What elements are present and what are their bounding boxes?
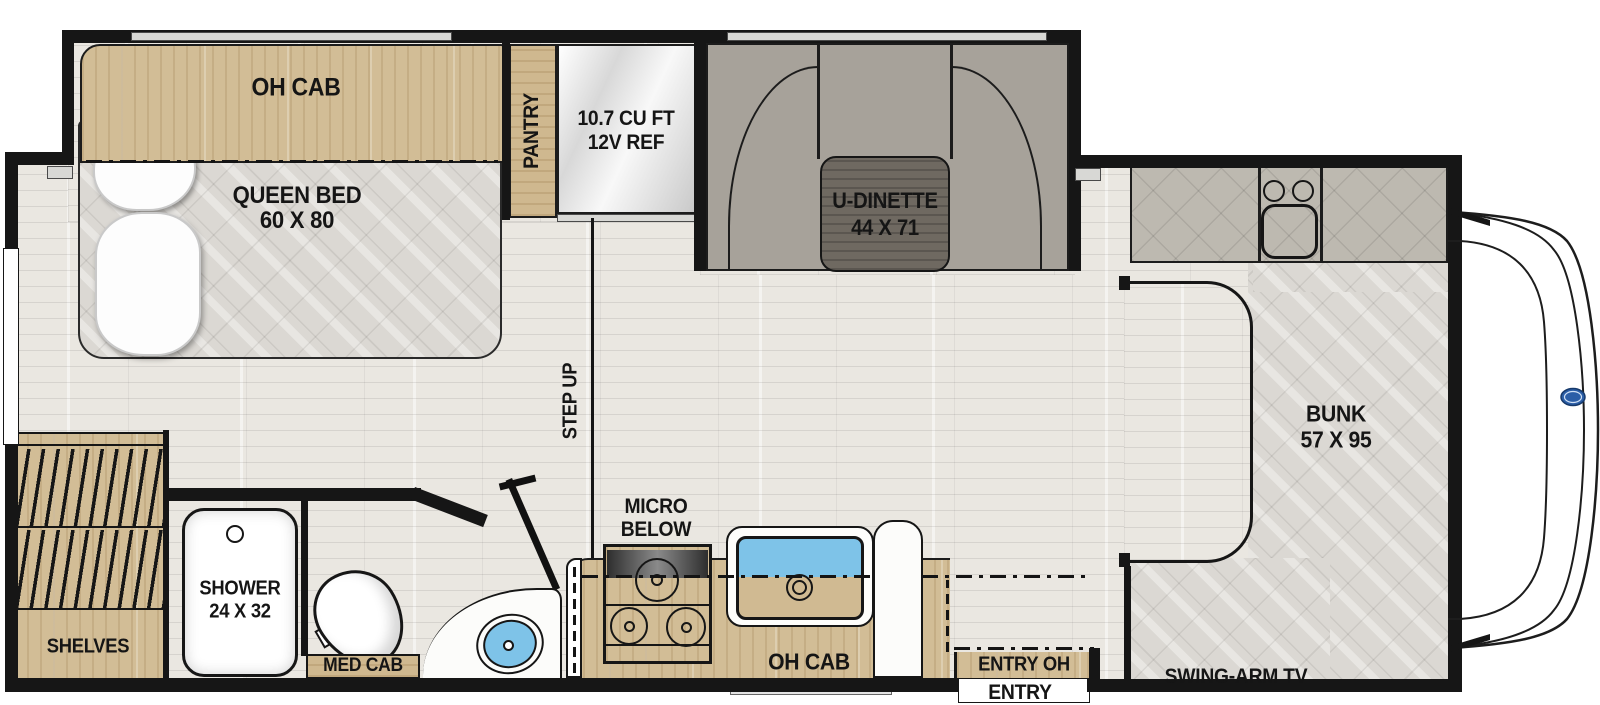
label-fridge-2: 12V REF (588, 131, 664, 155)
label-shower-1: SHOWER (199, 578, 280, 601)
label-bunk-1: BUNK (1306, 401, 1366, 428)
front-sink-knob-right (1292, 180, 1314, 202)
label-entry: ENTRY (988, 681, 1051, 705)
label-fridge-1: 10.7 CU FT (577, 107, 674, 131)
dinette-divider-right (950, 43, 953, 159)
entry-oh-dash (954, 647, 1094, 650)
label-bunk-2: 57 X 95 (1300, 427, 1371, 454)
sill-left-of-bed (47, 166, 73, 179)
shower-toilet-wall (301, 496, 308, 656)
sill-right-of-dinette (1075, 168, 1101, 181)
front-sink-divider-right (1320, 168, 1323, 263)
bath-wall-horizontal (163, 488, 421, 501)
label-med-cab: MED CAB (323, 655, 403, 677)
bedroom-oh-cab (80, 44, 505, 163)
label-queen-bed-size: 60 X 80 (260, 207, 334, 235)
kitchen-oh-dash-line (582, 575, 1090, 578)
bed-slideout-window (131, 32, 452, 41)
left-window (3, 248, 19, 445)
label-kitchen-oh-cab: OH CAB (768, 649, 850, 676)
pillow-bottom (95, 212, 201, 356)
label-dinette-1: U-DINETTE (832, 188, 937, 214)
label-entry-oh: ENTRY OH (978, 654, 1070, 677)
dinette-divider-left (817, 43, 820, 159)
top-wall-right (1081, 155, 1454, 168)
kitchen-faucet (792, 580, 807, 595)
bunk-mattress-upper (1253, 262, 1448, 292)
label-dinette-2: 44 X 71 (851, 215, 919, 241)
dinette-table (820, 156, 950, 272)
bulge-tick-bottom (1119, 553, 1130, 567)
label-pantry: PANTRY (520, 93, 544, 169)
tv-wall (1124, 566, 1131, 688)
cab-front-outline (1440, 140, 1600, 705)
hanging-rods-lower (16, 530, 164, 610)
dinette-slideout-right-wall (1069, 30, 1081, 271)
label-swing-arm-tv: SWING-ARM TV (1165, 665, 1308, 689)
step-up-line (591, 218, 594, 562)
vanity-drain (503, 640, 514, 651)
front-sink-knob-left (1263, 180, 1285, 202)
label-shelves: SHELVES (47, 636, 130, 659)
bed-cab-dash-line (86, 160, 498, 163)
bulge-tick-top (1119, 276, 1130, 290)
bed-pantry-divider-wall (502, 40, 510, 220)
burner-left-center (624, 621, 635, 632)
front-floor-bulge (1124, 281, 1253, 563)
bottom-wall-left (5, 678, 958, 692)
counter-flip-extension (873, 520, 923, 678)
label-micro-1: MICRO (624, 495, 687, 519)
wardrobe-right-wall (163, 430, 169, 678)
label-micro-2: BELOW (621, 518, 692, 542)
dinette-slideout-left-wall (694, 30, 706, 271)
burner-right-center (681, 622, 692, 633)
bed-slideout-left-wall (62, 30, 74, 165)
top-wall-left-stub (5, 152, 70, 165)
label-shower-2: 24 X 32 (209, 601, 271, 624)
counter-cap-dashes (573, 565, 576, 673)
label-queen-bed: QUEEN BED (233, 182, 362, 210)
fridge-sill (557, 214, 697, 222)
front-sink-basin (1261, 204, 1318, 259)
hanging-rods-upper (16, 449, 164, 528)
rv-floorplan: OH CAB QUEEN BED 60 X 80 PANTRY 10.7 CU … (0, 0, 1600, 705)
wardrobe-top-edge (14, 432, 166, 446)
stove-grate-line1 (606, 604, 709, 606)
counter-end-dashes (946, 580, 949, 652)
dinette-slideout-window (727, 32, 1047, 41)
label-bedroom-oh-cab: OH CAB (251, 74, 340, 103)
shower-drain (226, 525, 244, 543)
label-step-up: STEP UP (560, 363, 583, 439)
